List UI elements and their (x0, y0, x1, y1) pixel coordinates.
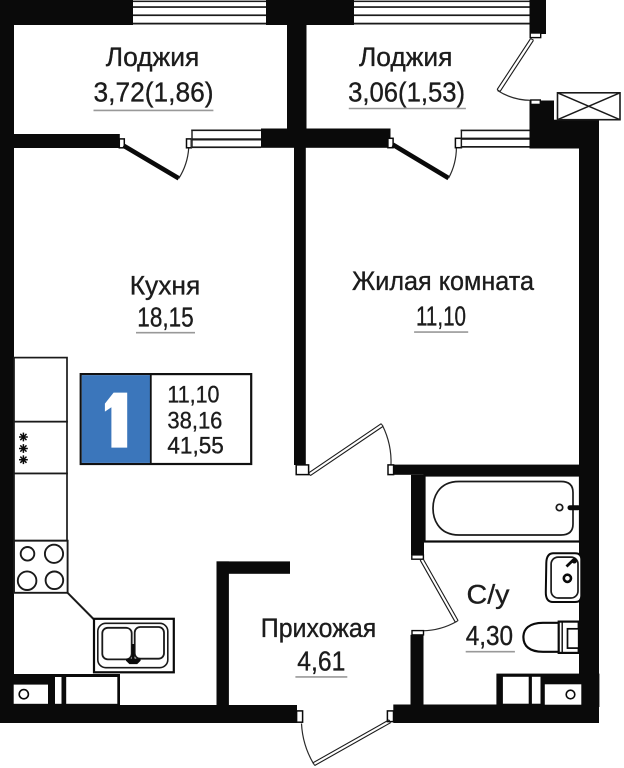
svg-text:4,30: 4,30 (466, 620, 513, 651)
svg-text:Лоджия: Лоджия (359, 42, 453, 72)
svg-text:3,06(1,53): 3,06(1,53) (348, 77, 465, 108)
svg-text:Кухня: Кухня (130, 271, 201, 301)
svg-text:18,15: 18,15 (137, 302, 193, 333)
svg-text:С/у: С/у (467, 580, 511, 610)
svg-text:38,16: 38,16 (167, 408, 222, 435)
svg-text:Лоджия: Лоджия (106, 42, 200, 72)
svg-text:Жилая комната: Жилая комната (352, 266, 535, 296)
svg-text:3,72(1,86): 3,72(1,86) (94, 77, 214, 108)
svg-text:11,10: 11,10 (416, 301, 466, 332)
svg-text:Прихожая: Прихожая (261, 613, 376, 643)
svg-text:4,61: 4,61 (297, 646, 345, 677)
svg-text:11,10: 11,10 (167, 382, 219, 409)
svg-text:41,55: 41,55 (167, 433, 223, 460)
